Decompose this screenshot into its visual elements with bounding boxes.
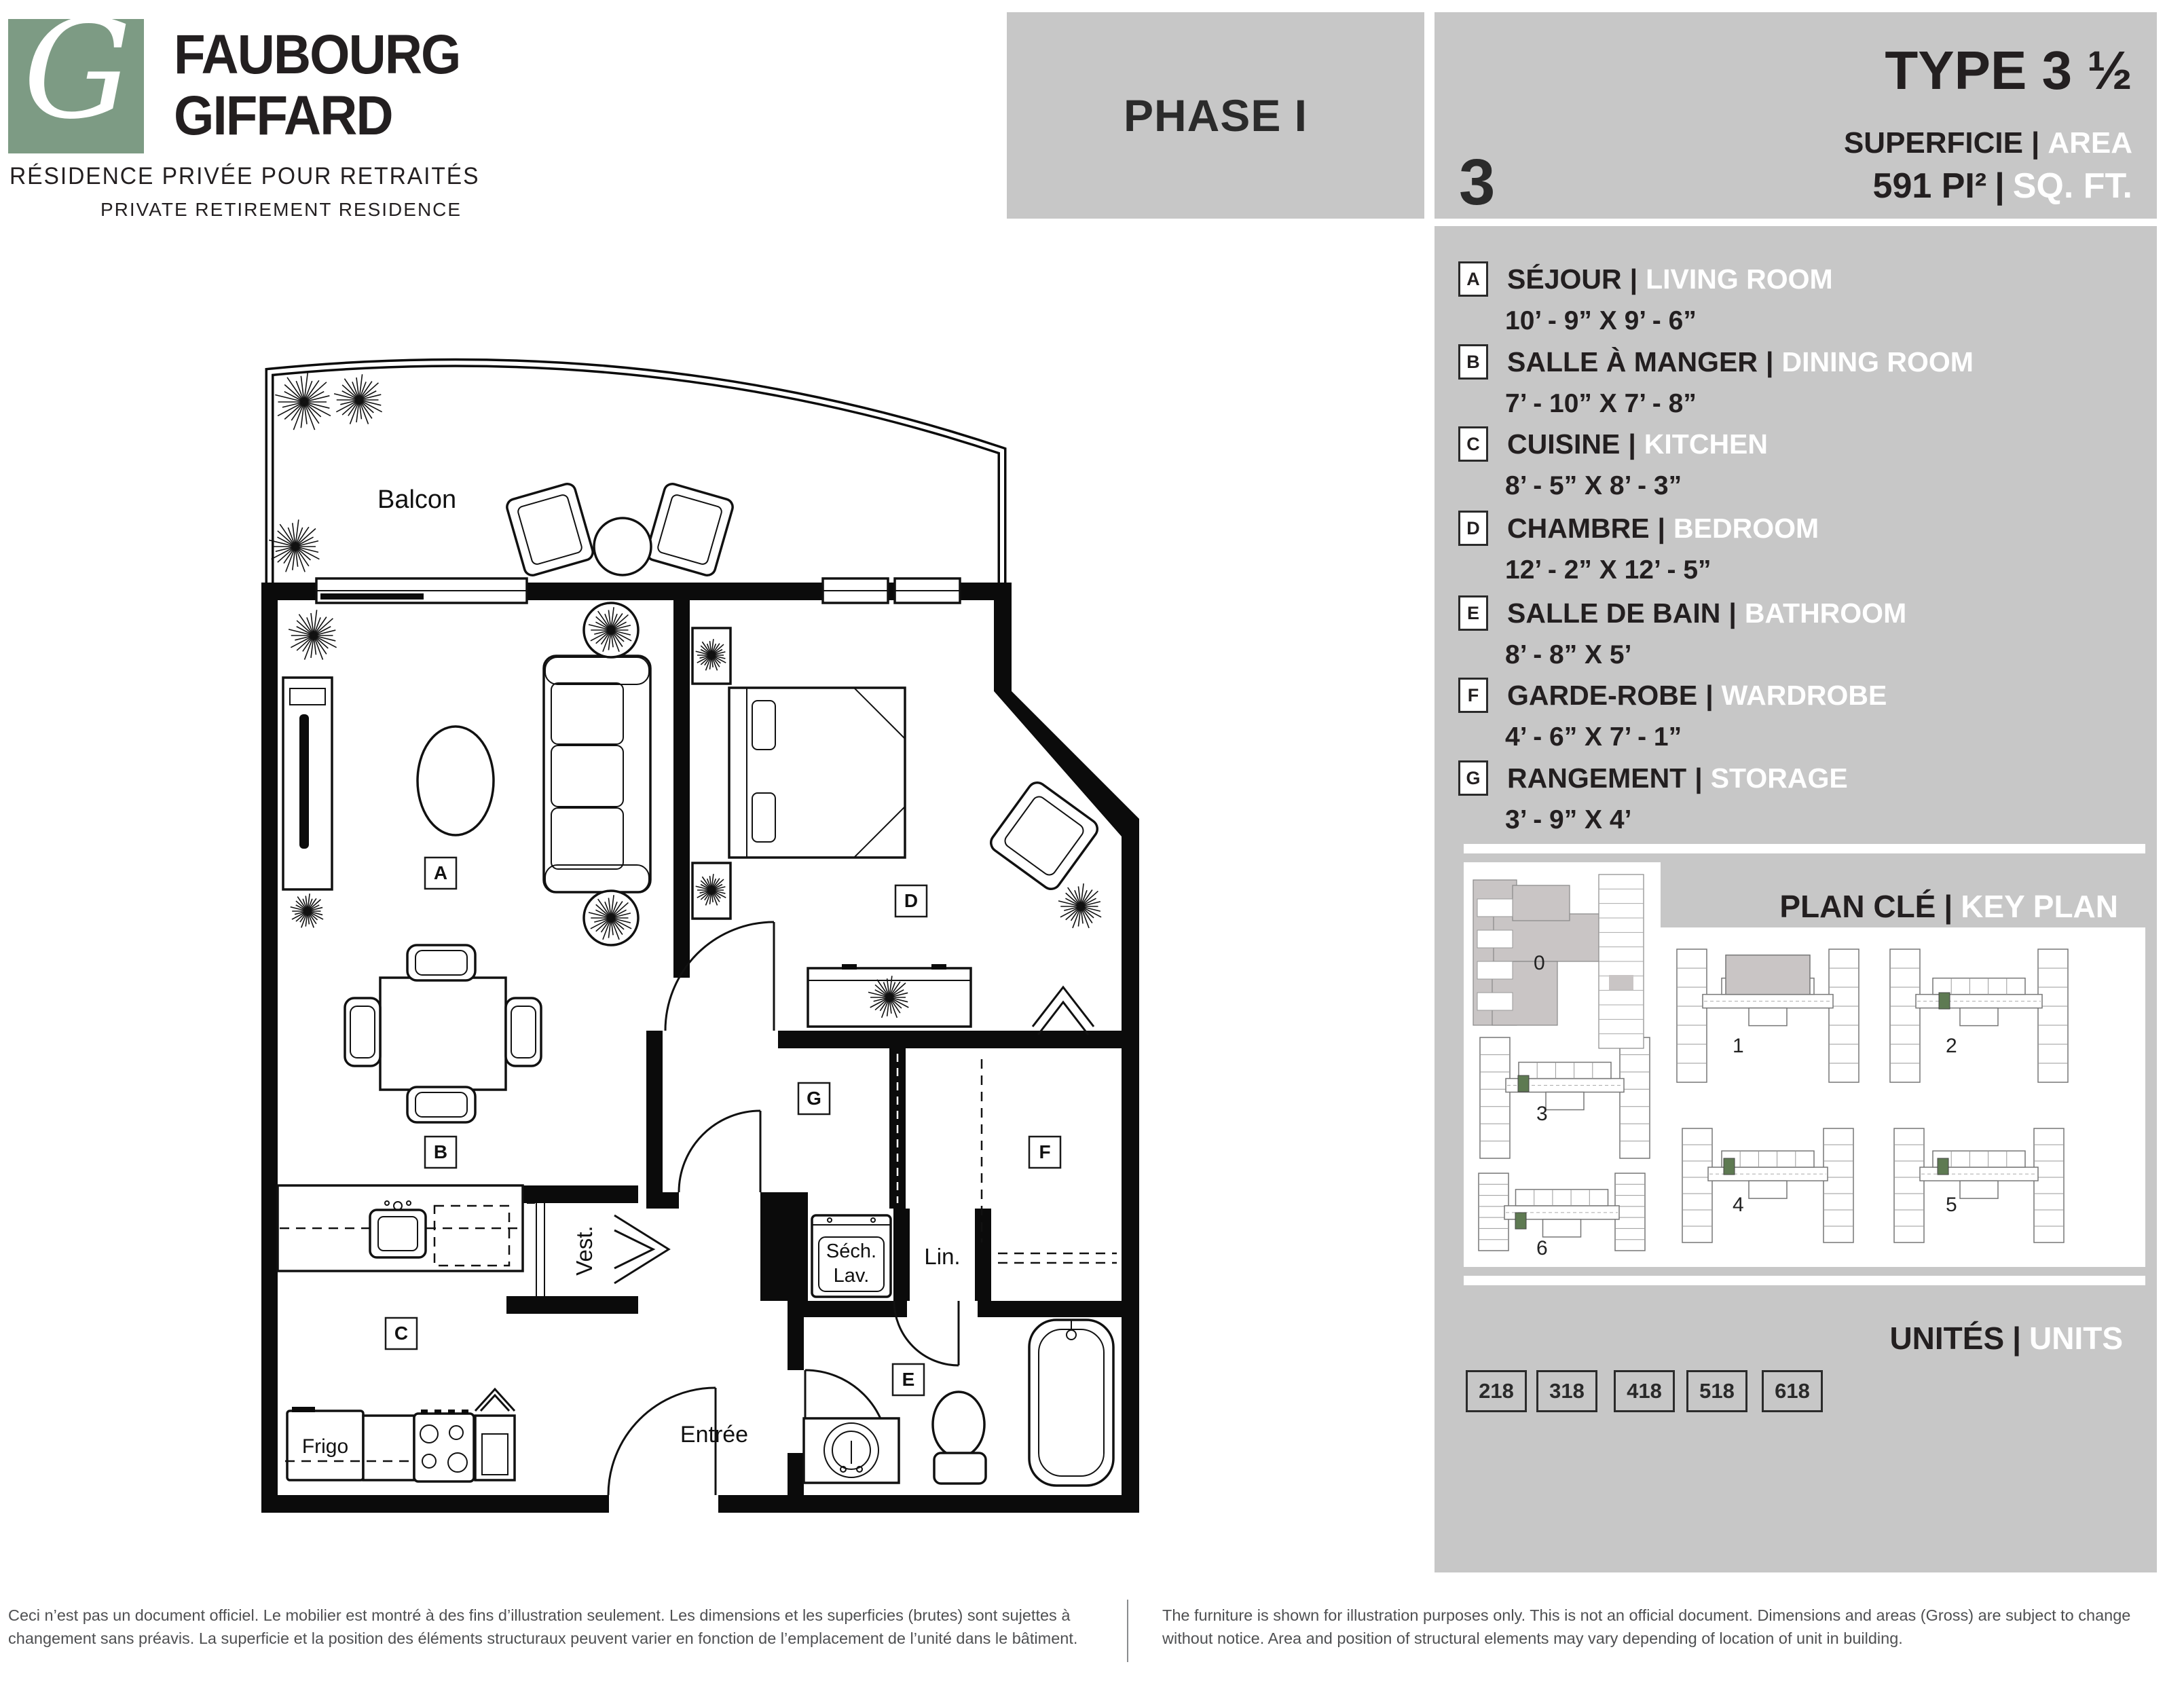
plant-icon	[291, 894, 323, 927]
plant-icon	[1058, 883, 1101, 928]
legend-dim-f: 4’ - 6” X 7’ - 1”	[1505, 722, 2130, 752]
living-room-furniture	[283, 603, 650, 945]
brand-name-line1: FAUBOURG	[174, 27, 460, 83]
balcony-label: Balcon	[377, 485, 456, 514]
key-plan-building-6: 6	[1479, 1173, 1645, 1259]
building-label-4: 4	[1733, 1194, 1744, 1216]
phase-label: PHASE I	[1124, 90, 1308, 141]
plant-icon	[334, 374, 382, 424]
type-header: 3 TYPE 3 ½ SUPERFICIE|AREA 591 PI²|SQ. F…	[1435, 12, 2157, 219]
legend-row-g: G RANGEMENT|STORAGE 3’ - 9” X 4’	[1458, 760, 2130, 835]
key-plan-building-2: 2	[1890, 949, 2068, 1082]
legend-dim-a: 10’ - 9” X 9’ - 6”	[1505, 306, 2130, 336]
legend-title-c: CUISINE|KITCHEN	[1507, 428, 1768, 460]
svg-text:D: D	[904, 890, 918, 911]
building-label-3: 3	[1536, 1103, 1548, 1125]
svg-text:C: C	[394, 1323, 408, 1344]
area-label: SUPERFICIE|AREA	[1844, 126, 2132, 160]
area-value: 591 PI²|SQ. FT.	[1873, 166, 2132, 206]
logo-letter-icon: G	[23, 3, 132, 139]
legend-letter-d: D	[1458, 511, 1488, 546]
svg-text:E: E	[902, 1369, 915, 1390]
fridge-label: Frigo	[302, 1435, 348, 1458]
dining-furniture	[345, 945, 541, 1122]
legend-title-a: SÉJOUR|LIVING ROOM	[1507, 263, 1833, 295]
legend-title-f: GARDE-ROBE|WARDROBE	[1507, 680, 1887, 712]
legend-dim-d: 12’ - 2” X 12’ - 5”	[1505, 555, 2130, 585]
legend-dim-e: 8’ - 8” X 5’	[1505, 640, 2130, 670]
svg-text:A: A	[434, 862, 447, 883]
legend-letter-c: C	[1458, 426, 1488, 462]
legend-row-e: E SALLE DE BAIN|BATHROOM 8’ - 8” X 5’	[1458, 595, 2130, 670]
laundry-label-1: Séch.	[826, 1240, 876, 1262]
units-title: UNITÉS|UNITS	[1667, 1320, 2123, 1357]
plant-icon	[289, 610, 337, 659]
linen-label: Lin.	[924, 1244, 960, 1269]
legend-row-c: C CUISINE|KITCHEN 8’ - 5” X 8’ - 3”	[1458, 426, 2130, 501]
unit-badge-318: 318	[1536, 1370, 1597, 1412]
bedroom-furniture	[692, 628, 1101, 1035]
legend-letter-f: F	[1458, 678, 1488, 713]
brand-name-line2: GIFFARD	[174, 88, 392, 144]
balcony-furniture	[505, 482, 735, 577]
legend-dim-c: 8’ - 5” X 8’ - 3”	[1505, 471, 2130, 501]
page: G FAUBOURG GIFFARD RÉSIDENCE PRIVÉE POUR…	[0, 0, 2184, 1694]
legend-row-a: A SÉJOUR|LIVING ROOM 10’ - 9” X 9’ - 6”	[1458, 261, 2130, 336]
legend-letter-g: G	[1458, 760, 1488, 796]
key-plan-building-3: 3	[1480, 1037, 1650, 1158]
logo: G	[8, 19, 144, 153]
legend-row-d: D CHAMBRE|BEDROOM 12’ - 2” X 12’ - 5”	[1458, 511, 2130, 585]
legend-title-d: CHAMBRE|BEDROOM	[1507, 513, 1819, 545]
floor-number: 3	[1459, 145, 1495, 220]
legend-letter-b: B	[1458, 344, 1488, 380]
key-plan-drawing: 1234560	[1464, 862, 2145, 1267]
divider-top	[1464, 844, 2145, 853]
entrance-label: Entrée	[680, 1422, 748, 1448]
divider-bottom	[1464, 1276, 2145, 1285]
plant-icon	[269, 519, 319, 572]
floor-plan: A B C D E F G Balcon Frigo Vest. Séch. L…	[258, 350, 1181, 1545]
legend-title-g: RANGEMENT|STORAGE	[1507, 762, 1848, 794]
unit-badge-618: 618	[1762, 1370, 1823, 1412]
closet-lines	[897, 1054, 1117, 1263]
legend-row-f: F GARDE-ROBE|WARDROBE 4’ - 6” X 7’ - 1”	[1458, 678, 2130, 752]
legend-dim-b: 7’ - 10” X 7’ - 8”	[1505, 389, 2130, 419]
vestibule-label: Vest.	[572, 1226, 597, 1275]
brand-subtitle-fr: RÉSIDENCE PRIVÉE POUR RETRAITÉS	[10, 163, 479, 190]
legend-row-b: B SALLE À MANGER|DINING ROOM 7’ - 10” X …	[1458, 344, 2130, 419]
brand-subtitle-en: PRIVATE RETIREMENT RESIDENCE	[100, 199, 462, 221]
legend-title-b: SALLE À MANGER|DINING ROOM	[1507, 346, 1974, 378]
svg-text:B: B	[434, 1141, 447, 1162]
disclaimer-fr: Ceci n’est pas un document officiel. Le …	[8, 1604, 1088, 1650]
legend-title-e: SALLE DE BAIN|BATHROOM	[1507, 597, 1906, 629]
laundry-label-2: Lav.	[834, 1265, 870, 1287]
building-label-0: 0	[1534, 952, 1545, 974]
key-plan-building-5: 5	[1894, 1128, 2064, 1242]
disclaimer-divider	[1127, 1600, 1128, 1662]
unit-type-title: TYPE 3 ½	[1885, 39, 2132, 102]
disclaimer-en: The furniture is shown for illustration …	[1162, 1604, 2140, 1650]
unit-badge-218: 218	[1466, 1370, 1527, 1412]
building-label-6: 6	[1536, 1237, 1548, 1259]
building-label-5: 5	[1946, 1194, 1957, 1216]
key-plan-building-4: 4	[1682, 1128, 1853, 1242]
key-plan-building-0: 0	[1473, 874, 1644, 1048]
phase-banner: PHASE I	[1007, 12, 1424, 219]
key-plan-building-1: 1	[1677, 949, 1859, 1082]
unit-badge-518: 518	[1686, 1370, 1747, 1412]
building-label-1: 1	[1733, 1035, 1744, 1057]
legend-dim-g: 3’ - 9” X 4’	[1505, 805, 2130, 835]
legend-letter-a: A	[1458, 261, 1488, 297]
svg-text:F: F	[1039, 1141, 1050, 1162]
building-label-2: 2	[1946, 1035, 1957, 1057]
plant-icon	[275, 372, 331, 430]
legend-letter-e: E	[1458, 595, 1488, 631]
svg-text:G: G	[807, 1088, 821, 1109]
unit-badge-418: 418	[1614, 1370, 1675, 1412]
